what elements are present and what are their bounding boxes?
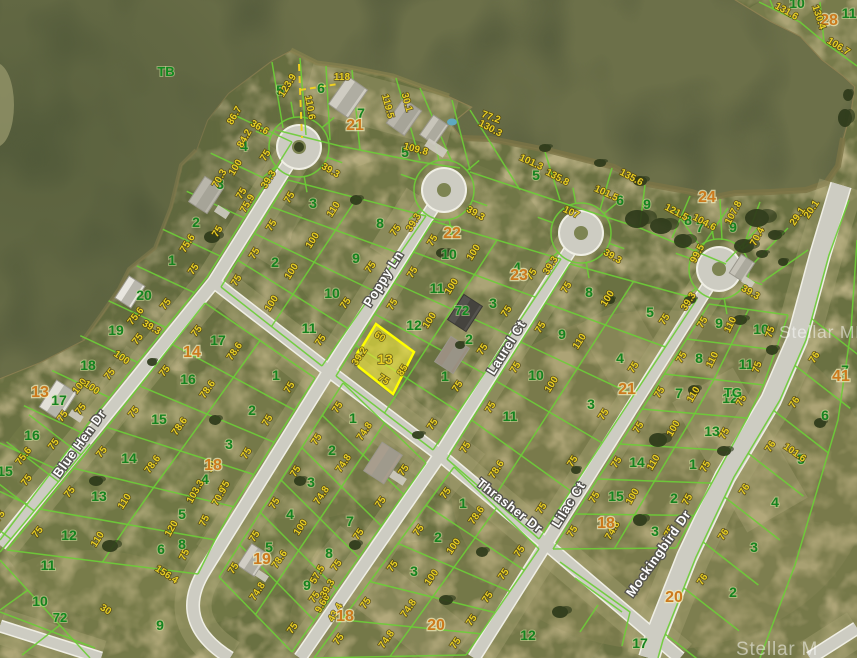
svg-text:4: 4 [286, 506, 294, 522]
svg-text:2: 2 [465, 331, 473, 347]
svg-text:2: 2 [729, 584, 737, 600]
svg-text:118: 118 [334, 72, 351, 83]
svg-text:20: 20 [665, 589, 683, 606]
svg-text:10: 10 [528, 367, 544, 383]
svg-text:9: 9 [352, 250, 360, 266]
svg-text:3: 3 [225, 436, 233, 452]
svg-text:8: 8 [376, 215, 384, 231]
svg-text:3: 3 [651, 523, 659, 539]
svg-text:17: 17 [632, 635, 648, 651]
svg-text:1: 1 [441, 368, 449, 384]
svg-text:2: 2 [434, 529, 442, 545]
svg-text:2: 2 [271, 254, 279, 270]
svg-text:18: 18 [204, 457, 222, 474]
svg-text:21: 21 [346, 117, 364, 134]
svg-text:19: 19 [253, 551, 271, 568]
svg-text:20: 20 [136, 287, 152, 303]
svg-text:5: 5 [178, 506, 186, 522]
svg-text:8: 8 [325, 545, 333, 561]
svg-text:1: 1 [349, 410, 357, 426]
svg-text:18: 18 [336, 608, 354, 625]
svg-text:6: 6 [317, 80, 325, 96]
svg-text:12: 12 [520, 627, 536, 643]
svg-text:4: 4 [771, 494, 779, 510]
svg-text:3: 3 [410, 563, 418, 579]
svg-text:15: 15 [0, 463, 13, 479]
svg-text:TB: TB [157, 64, 174, 79]
svg-text:11: 11 [41, 557, 56, 573]
svg-text:11: 11 [842, 5, 857, 21]
svg-text:3: 3 [309, 195, 317, 211]
svg-text:12: 12 [61, 527, 77, 543]
svg-text:22: 22 [443, 225, 461, 242]
svg-text:13: 13 [91, 488, 107, 504]
svg-text:3: 3 [750, 539, 758, 555]
svg-text:3: 3 [587, 396, 595, 412]
svg-text:9: 9 [558, 326, 566, 342]
svg-text:9: 9 [156, 617, 164, 633]
svg-text:17: 17 [210, 332, 226, 348]
svg-text:11: 11 [503, 408, 518, 424]
svg-text:72: 72 [455, 303, 469, 318]
svg-text:8: 8 [695, 350, 703, 366]
svg-text:10: 10 [441, 246, 457, 262]
svg-text:14: 14 [183, 344, 201, 361]
svg-text:72: 72 [53, 610, 67, 625]
svg-text:7: 7 [346, 513, 354, 529]
svg-text:2: 2 [670, 490, 678, 506]
svg-text:1: 1 [168, 252, 176, 268]
svg-text:14: 14 [121, 450, 137, 466]
svg-text:3: 3 [489, 295, 497, 311]
svg-text:15: 15 [608, 488, 624, 504]
svg-text:15: 15 [151, 411, 167, 427]
svg-text:9: 9 [643, 196, 651, 212]
svg-text:8: 8 [585, 284, 593, 300]
svg-text:2: 2 [192, 214, 200, 230]
svg-text:16: 16 [24, 427, 40, 443]
svg-text:1: 1 [459, 495, 467, 511]
svg-text:3: 3 [307, 474, 315, 490]
svg-text:Stellar M: Stellar M [736, 639, 818, 658]
svg-text:7: 7 [675, 385, 683, 401]
svg-text:23: 23 [510, 267, 528, 284]
svg-text:21: 21 [618, 381, 636, 398]
svg-text:11: 11 [302, 320, 317, 336]
svg-text:Stellar MLS: Stellar MLS [779, 322, 857, 342]
svg-text:13: 13 [377, 351, 393, 367]
svg-text:2: 2 [328, 442, 336, 458]
svg-text:1: 1 [272, 367, 280, 383]
svg-text:5: 5 [646, 304, 654, 320]
svg-text:24: 24 [698, 189, 716, 206]
svg-text:13: 13 [31, 384, 49, 401]
svg-text:17: 17 [51, 392, 67, 408]
svg-text:8: 8 [178, 536, 186, 552]
svg-text:16: 16 [180, 371, 196, 387]
svg-text:TG: TG [724, 385, 742, 400]
svg-text:12: 12 [406, 317, 422, 333]
svg-text:41: 41 [832, 368, 850, 385]
svg-text:18: 18 [80, 357, 96, 373]
svg-text:14: 14 [629, 454, 645, 470]
svg-text:18: 18 [597, 515, 615, 532]
svg-text:6: 6 [821, 407, 829, 423]
svg-text:1: 1 [689, 456, 697, 472]
svg-text:10: 10 [324, 285, 340, 301]
svg-text:6: 6 [157, 541, 165, 557]
svg-text:4: 4 [616, 350, 624, 366]
svg-text:10: 10 [32, 593, 48, 609]
svg-text:20: 20 [427, 617, 445, 634]
svg-text:11: 11 [430, 280, 445, 296]
svg-text:2: 2 [248, 402, 256, 418]
svg-text:19: 19 [108, 322, 124, 338]
